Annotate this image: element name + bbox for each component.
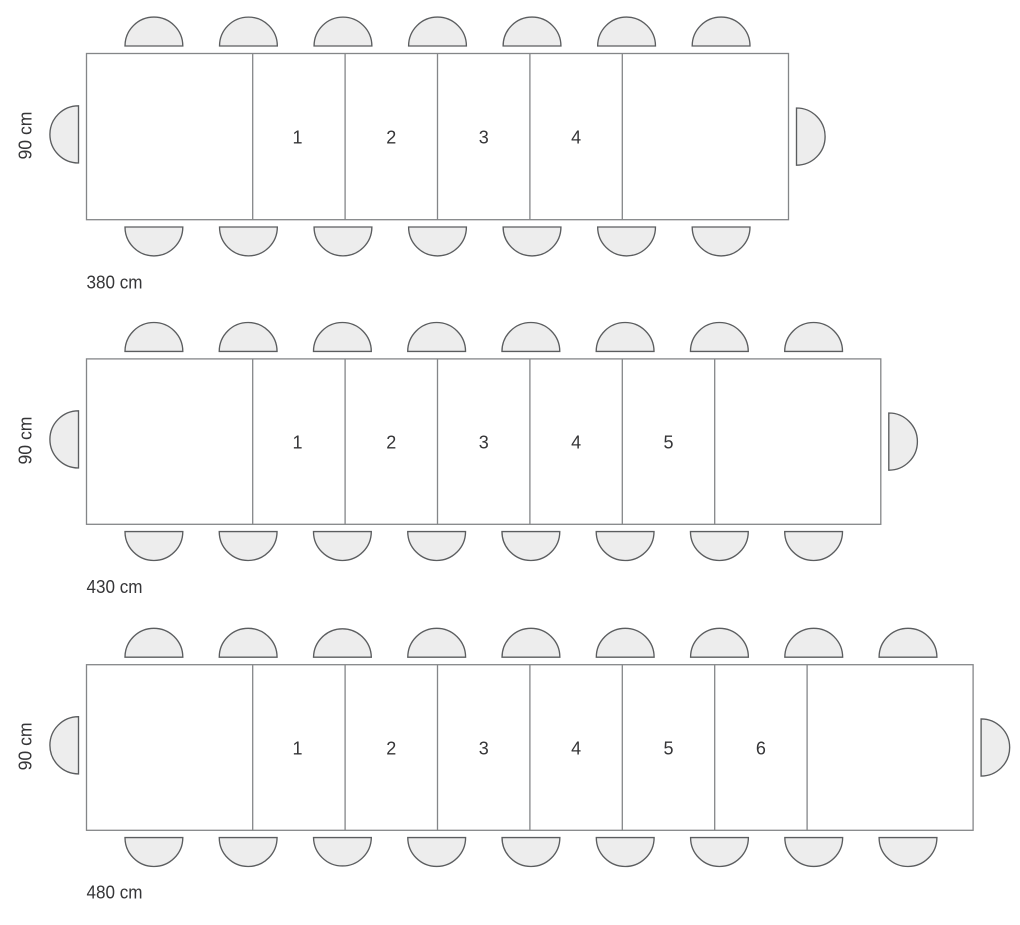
svg-text:3: 3 — [479, 433, 489, 453]
svg-text:3: 3 — [479, 739, 489, 759]
svg-text:1: 1 — [292, 739, 302, 759]
svg-text:4: 4 — [571, 739, 581, 759]
svg-text:4: 4 — [571, 128, 581, 148]
svg-text:2: 2 — [386, 739, 396, 759]
svg-text:480 cm: 480 cm — [87, 883, 143, 903]
svg-text:4: 4 — [571, 433, 581, 453]
svg-text:5: 5 — [663, 433, 673, 453]
svg-text:380 cm: 380 cm — [87, 272, 143, 292]
svg-text:430 cm: 430 cm — [87, 577, 143, 597]
svg-text:2: 2 — [386, 433, 396, 453]
svg-text:1: 1 — [292, 128, 302, 148]
svg-text:1: 1 — [292, 433, 302, 453]
svg-text:3: 3 — [479, 128, 489, 148]
svg-text:5: 5 — [663, 739, 673, 759]
svg-text:90 cm: 90 cm — [16, 722, 36, 770]
svg-text:6: 6 — [756, 739, 766, 759]
svg-text:2: 2 — [386, 128, 396, 148]
svg-text:90 cm: 90 cm — [16, 112, 36, 160]
svg-text:90 cm: 90 cm — [16, 417, 36, 465]
